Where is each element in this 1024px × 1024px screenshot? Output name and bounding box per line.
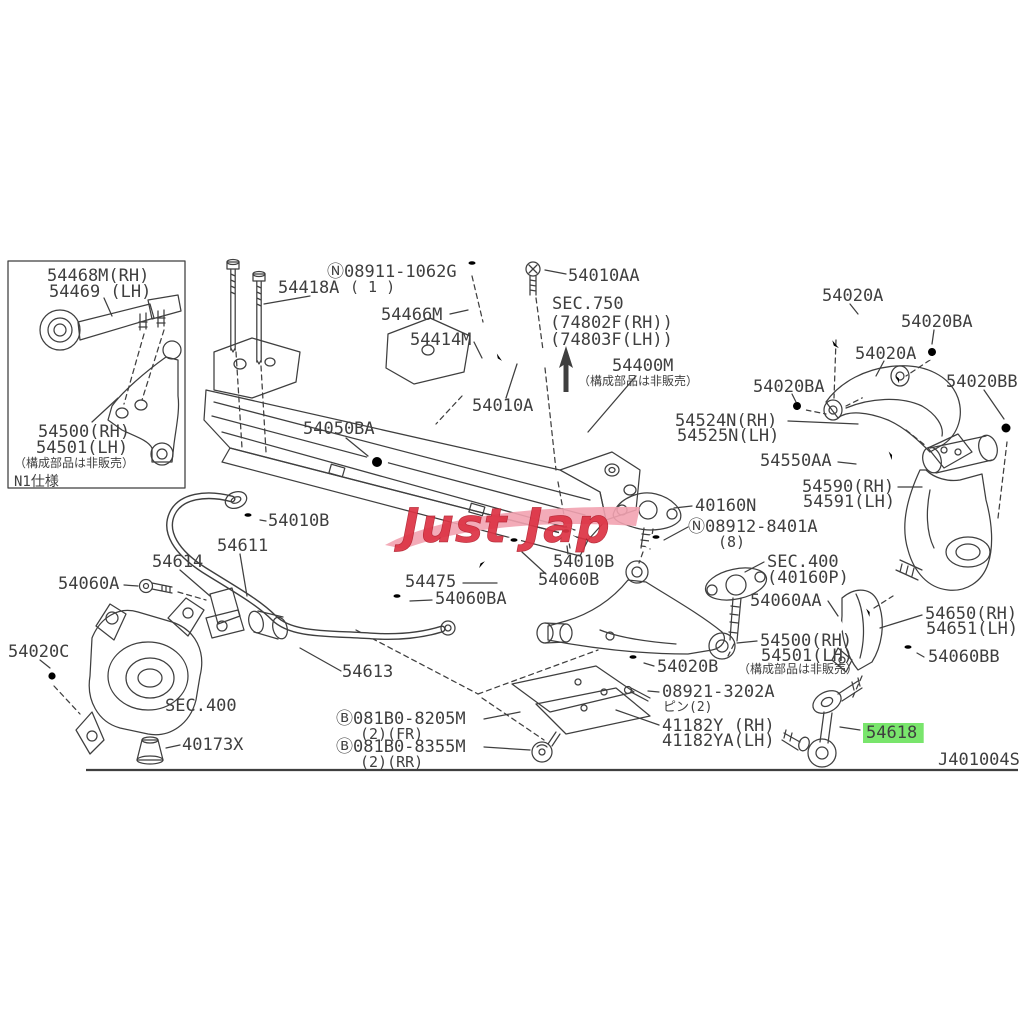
- member-bolt-drawing: [253, 272, 265, 365]
- part-label: SEC.750: [552, 294, 624, 314]
- diagram-code: J401004S: [938, 750, 1020, 770]
- part-label: （構成部品は非販売）: [578, 373, 698, 388]
- square-nut-drawing: [922, 343, 941, 361]
- part-label: 54010B: [553, 552, 614, 572]
- part-label: 41182YA(LH): [662, 731, 775, 751]
- part-label: 54060BB: [928, 647, 1000, 667]
- flange-nut-drawing: [461, 260, 483, 276]
- part-label: Ⓝ08912-8401A: [688, 517, 818, 537]
- part-label: 54020BA: [901, 312, 973, 332]
- part-label: 54060AA: [750, 591, 822, 611]
- pan-screw-drawing: [526, 262, 540, 295]
- member-bolt-drawing: [227, 260, 239, 353]
- part-label: 54060BA: [435, 589, 507, 609]
- part-label: 54020BA: [753, 377, 825, 397]
- watermark-text: Just Jap: [394, 499, 611, 554]
- part-label: 54020C: [8, 642, 69, 662]
- parts-diagram-page: Just Jap 54468M(RH)54469 (LH)54500(RH)54…: [0, 0, 1024, 1024]
- part-label: 54400M: [612, 356, 673, 376]
- square-nut-drawing: [787, 397, 806, 415]
- part-label: (8): [718, 533, 745, 551]
- part-label: 54651(LH): [926, 619, 1018, 639]
- washer-drawing: [44, 668, 60, 684]
- part-label: 54469 (LH): [49, 282, 151, 302]
- flange-nut-drawing: [237, 512, 259, 528]
- part-label: （構成部品は非販売）: [14, 455, 134, 470]
- part-label: 54550AA: [760, 451, 832, 471]
- part-label: 54050BA: [303, 419, 375, 439]
- stabilizer-connecting-rod-drawing: [782, 678, 862, 767]
- washer-drawing: [996, 418, 1016, 438]
- bolt-drawing: [851, 448, 894, 475]
- grommet-drawing: [366, 451, 388, 473]
- part-label: 40173X: [182, 735, 244, 755]
- bolt-drawing: [494, 329, 536, 364]
- sec750-arrow-icon: [559, 346, 573, 392]
- flange-nut-drawing: [897, 644, 919, 660]
- part-label: 54010AA: [568, 266, 640, 286]
- part-label: 54414M: [410, 330, 471, 350]
- bolt-drawing: [829, 606, 872, 634]
- part-label: 54010A: [472, 396, 533, 416]
- part-label: 54020A: [822, 286, 883, 306]
- part-label: (2)(RR): [360, 753, 423, 771]
- watermark: Just Jap: [385, 499, 640, 554]
- part-label: 54613: [342, 662, 393, 682]
- part-label: ピン(2): [663, 700, 712, 715]
- part-label: 54501(LH): [36, 438, 128, 458]
- part-label: （構成部品は非販売）: [738, 661, 858, 676]
- highlighted-part-number: 54618: [866, 723, 917, 743]
- part-label: 08921-3202A: [662, 682, 775, 702]
- part-label: (40160P): [767, 568, 849, 588]
- part-label: 54466M: [381, 305, 442, 325]
- part-label: 54010B: [268, 511, 329, 531]
- part-label: 54611: [217, 536, 268, 556]
- part-label: 54525N(LH): [677, 426, 779, 446]
- bound-bumper-drawing: [137, 737, 163, 764]
- part-label: 54591(LH): [803, 492, 895, 512]
- part-label: ( 1 ): [350, 278, 395, 296]
- keps-nut-drawing: [386, 593, 408, 609]
- part-label: SEC.400: [165, 696, 237, 716]
- part-label: 54060B: [538, 570, 599, 590]
- part-label: 54060A: [58, 574, 119, 594]
- part-label: 54020A: [855, 344, 916, 364]
- round-bolt-drawing: [140, 580, 173, 594]
- part-label: N1仕様: [14, 474, 59, 490]
- flange-nut-drawing: [622, 654, 644, 670]
- part-label: (74803F(LH)): [550, 330, 673, 350]
- steering-knuckle-right-drawing: [896, 433, 1000, 590]
- tension-rod-bracket-drawing: [512, 666, 650, 734]
- suspension-parts-diagram: Just Jap 54468M(RH)54469 (LH)54500(RH)54…: [0, 0, 1024, 1024]
- part-label: 40160N: [695, 496, 756, 516]
- part-label: 54020B: [657, 657, 718, 677]
- part-label: 54614: [152, 552, 203, 572]
- part-label: 54418A: [278, 278, 339, 298]
- part-label: 54020BB: [946, 372, 1018, 392]
- round-head-bolt-drawing: [532, 732, 560, 762]
